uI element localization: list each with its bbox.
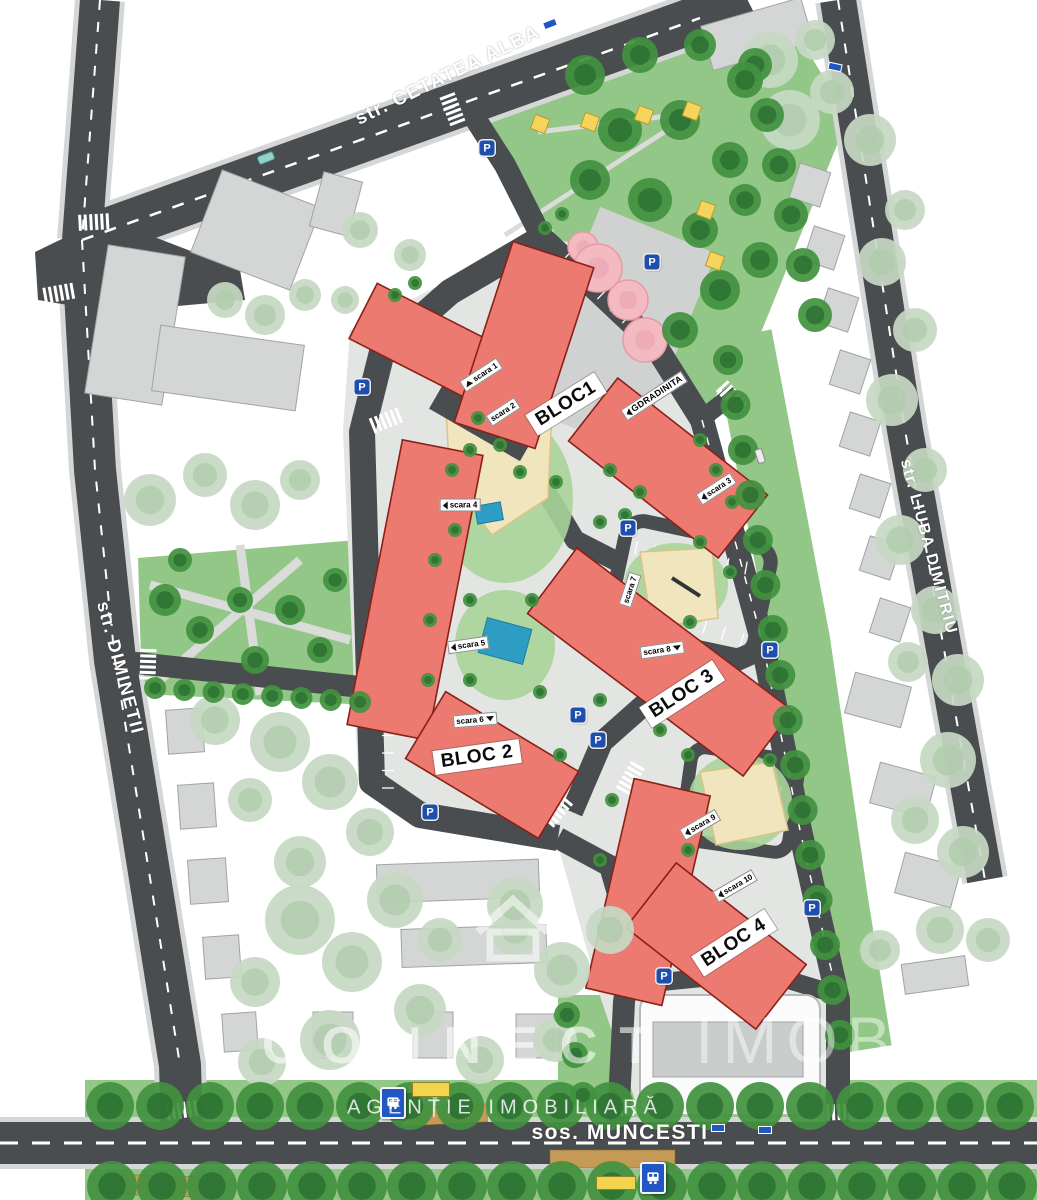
tree-icon — [709, 279, 731, 301]
tree-icon — [516, 468, 524, 476]
tree-icon — [897, 651, 919, 673]
tree-icon — [325, 694, 337, 706]
tree-icon — [878, 386, 907, 415]
tree-icon — [856, 126, 885, 155]
tree-icon — [747, 1093, 773, 1119]
tree-icon — [548, 1172, 576, 1200]
tree-icon — [448, 466, 456, 474]
parking-sign: P — [805, 901, 820, 916]
tree-icon — [698, 1172, 726, 1200]
tree-icon — [136, 486, 165, 515]
tree-icon — [847, 1093, 873, 1119]
arrow-down-icon — [486, 716, 494, 722]
existing-building — [829, 350, 871, 394]
tree-icon — [233, 593, 247, 607]
tree-icon — [686, 618, 694, 626]
tree-icon — [606, 466, 614, 474]
parking-sign: P — [763, 643, 778, 658]
arrow-up-icon — [464, 379, 473, 388]
tree-icon — [286, 848, 315, 877]
flower-bed — [635, 330, 655, 350]
flower-bed — [619, 291, 637, 309]
parking-sign: P — [571, 708, 586, 723]
tree-icon — [193, 463, 217, 487]
tree-icon — [948, 1172, 976, 1200]
tree-icon — [249, 1049, 275, 1075]
tree-icon — [997, 1093, 1023, 1119]
tree-icon — [748, 1172, 776, 1200]
existing-building — [901, 956, 969, 995]
tree-icon — [690, 220, 710, 240]
entrance-label-scara-4: scara 4 — [440, 499, 481, 512]
tree-icon — [406, 996, 435, 1025]
parking-sign: P — [657, 969, 672, 984]
tree-icon — [466, 446, 474, 454]
tree-icon — [794, 802, 811, 819]
tree-icon — [498, 1172, 526, 1200]
tree-icon — [608, 118, 632, 142]
tree-icon — [426, 616, 434, 624]
tree-icon — [696, 436, 704, 444]
tree-icon — [97, 1093, 123, 1119]
tree-icon — [894, 199, 916, 221]
tree-icon — [787, 757, 804, 774]
tree-icon — [802, 847, 819, 864]
tree-icon — [621, 511, 629, 519]
tree-icon — [712, 466, 720, 474]
tree-icon — [727, 397, 744, 414]
crosswalk-stripe — [140, 654, 156, 658]
tree-icon — [282, 602, 299, 619]
tree-icon — [782, 206, 801, 225]
tree-icon — [597, 917, 623, 943]
crosswalk-stripe — [140, 660, 156, 664]
tree-icon — [574, 64, 596, 86]
tree-icon — [804, 29, 826, 51]
tree-icon — [247, 1093, 273, 1119]
tree-icon — [596, 518, 604, 526]
tree-icon — [568, 1048, 582, 1062]
tree-icon — [720, 352, 737, 369]
tree-icon — [806, 306, 825, 325]
tree-icon — [178, 684, 190, 696]
tree-icon — [728, 498, 736, 506]
tree-icon — [848, 1172, 876, 1200]
parking-sign: P — [355, 380, 370, 395]
tree-icon — [428, 928, 452, 952]
tree-icon — [630, 45, 650, 65]
tree-icon — [949, 838, 978, 867]
tree-icon — [944, 666, 973, 695]
tree-icon — [254, 304, 276, 326]
tree-icon — [295, 692, 307, 704]
tree-icon — [348, 1172, 376, 1200]
tree-icon — [691, 36, 709, 54]
tree-icon — [933, 745, 964, 776]
arrow-down-icon — [672, 645, 681, 651]
tree-icon — [173, 553, 186, 566]
tree-icon — [398, 1172, 426, 1200]
arrow-left-icon — [450, 643, 456, 652]
tree-icon — [947, 1093, 973, 1119]
tree-icon — [541, 224, 549, 232]
arrow-left-icon — [443, 501, 448, 509]
existing-building — [869, 598, 911, 642]
tree-icon — [558, 210, 566, 218]
tree-icon — [298, 1172, 326, 1200]
tree-icon — [696, 538, 704, 546]
tree-icon — [927, 917, 953, 943]
parking-sign: P — [645, 255, 660, 270]
tree-icon — [596, 696, 604, 704]
road-sign-icon — [759, 1127, 772, 1134]
existing-building — [178, 783, 217, 829]
tree-icon — [357, 819, 383, 845]
parking-sign: P — [591, 733, 606, 748]
tree-icon — [998, 1172, 1026, 1200]
tree-icon — [380, 885, 411, 916]
tree-icon — [411, 279, 419, 287]
tree-icon — [750, 532, 767, 549]
tree-icon — [241, 491, 269, 519]
tree-icon — [543, 1028, 567, 1052]
tree-icon — [765, 622, 782, 639]
tree-icon — [354, 696, 366, 708]
tree-icon — [670, 320, 690, 340]
tree-icon — [156, 591, 174, 609]
tree-icon — [798, 1172, 826, 1200]
crosswalk-stripe — [140, 649, 156, 653]
tree-icon — [496, 441, 504, 449]
tree-icon — [98, 1172, 126, 1200]
tree-icon — [897, 1093, 923, 1119]
site-plan-canvas: str. CETATEA ALBA str. DIMINETII str. LI… — [0, 0, 1037, 1200]
tree-icon — [147, 1093, 173, 1119]
tree-icon — [215, 290, 235, 310]
tree-icon — [466, 676, 474, 684]
tree-icon — [315, 767, 346, 798]
tree-icon — [735, 70, 755, 90]
tree-icon — [697, 1093, 723, 1119]
street-label-muncesti: sos. MUNCESTI — [531, 1121, 708, 1145]
tree-icon — [467, 1047, 493, 1073]
tree-icon — [758, 106, 777, 125]
crosswalk-stripe — [140, 671, 156, 675]
tree-icon — [149, 682, 161, 694]
tree-icon — [401, 246, 419, 264]
tree-icon — [248, 1172, 276, 1200]
tree-icon — [770, 156, 789, 175]
parking-sign: P — [621, 521, 636, 536]
tree-icon — [192, 622, 207, 637]
tree-icon — [197, 1093, 223, 1119]
tree-icon — [198, 1172, 226, 1200]
existing-building — [188, 858, 229, 905]
tree-icon — [552, 478, 560, 486]
tree-icon — [237, 688, 249, 700]
tree-icon — [528, 596, 536, 604]
tree-icon — [201, 706, 229, 734]
site-plan-svg — [0, 0, 1037, 1200]
tree-icon — [297, 1093, 323, 1119]
tree-icon — [336, 946, 369, 979]
watermark-tagline: AGENȚIE IMOBILIARĂ — [347, 1097, 663, 1120]
tree-icon — [474, 414, 482, 422]
parking-structure — [653, 1022, 803, 1077]
tree-icon — [466, 596, 474, 604]
road-sign-icon — [712, 1125, 725, 1132]
watermark-house-icon — [470, 890, 556, 966]
tree-icon — [820, 80, 844, 104]
tree-icon — [772, 667, 789, 684]
tree-icon — [636, 488, 644, 496]
bus-shelter — [412, 1082, 450, 1097]
tree-icon — [779, 712, 796, 729]
tree-icon — [424, 676, 432, 684]
tree-icon — [869, 939, 891, 961]
road-sign-icon — [543, 18, 558, 29]
tree-icon — [337, 292, 352, 307]
tree-icon — [794, 256, 813, 275]
tree-icon — [247, 652, 262, 667]
existing-building — [849, 474, 891, 518]
tree-icon — [736, 191, 754, 209]
tree-icon — [391, 291, 399, 299]
tree-icon — [289, 469, 311, 491]
tree-icon — [266, 690, 278, 702]
tree-icon — [281, 901, 320, 940]
tree-icon — [208, 686, 220, 698]
tree-icon — [766, 756, 774, 764]
tree-icon — [903, 318, 927, 342]
crosswalk-stripe — [140, 665, 156, 669]
tree-icon — [296, 286, 314, 304]
tree-icon — [608, 796, 616, 804]
tree-icon — [638, 188, 662, 212]
tree-icon — [350, 220, 370, 240]
tree-icon — [448, 1172, 476, 1200]
tree-icon — [684, 846, 692, 854]
tree-icon — [817, 937, 834, 954]
tree-icon — [556, 751, 564, 759]
tree-icon — [832, 1027, 849, 1044]
tree-icon — [869, 249, 895, 275]
tree-icon — [902, 807, 928, 833]
tree-icon — [684, 751, 692, 759]
tree-icon — [328, 573, 341, 586]
existing-building — [152, 325, 305, 411]
tree-icon — [886, 526, 914, 554]
tree-icon — [579, 169, 601, 191]
tree-icon — [757, 577, 774, 594]
tree-icon — [726, 568, 734, 576]
tree-icon — [720, 150, 740, 170]
tree-icon — [656, 726, 664, 734]
tree-icon — [824, 982, 841, 999]
tree-icon — [241, 968, 269, 996]
bus-shelter — [596, 1176, 636, 1190]
tree-icon — [238, 788, 262, 812]
tree-icon — [560, 1008, 574, 1022]
parking-sign: P — [423, 805, 438, 820]
tree-icon — [797, 1093, 823, 1119]
tree-icon — [750, 250, 770, 270]
tree-icon — [431, 556, 439, 564]
tree-icon — [735, 442, 752, 459]
parking-sign: P — [480, 141, 495, 156]
tree-icon — [148, 1172, 176, 1200]
bus-icon — [645, 1170, 661, 1186]
tree-icon — [451, 526, 459, 534]
tree-icon — [596, 856, 604, 864]
tree-icon — [314, 1024, 347, 1057]
tree-icon — [536, 688, 544, 696]
tree-icon — [898, 1172, 926, 1200]
tree-icon — [313, 643, 327, 657]
tree-icon — [976, 928, 1000, 952]
tree-icon — [264, 726, 297, 759]
tree-icon — [742, 487, 759, 504]
bus-stop-sign — [640, 1162, 666, 1194]
